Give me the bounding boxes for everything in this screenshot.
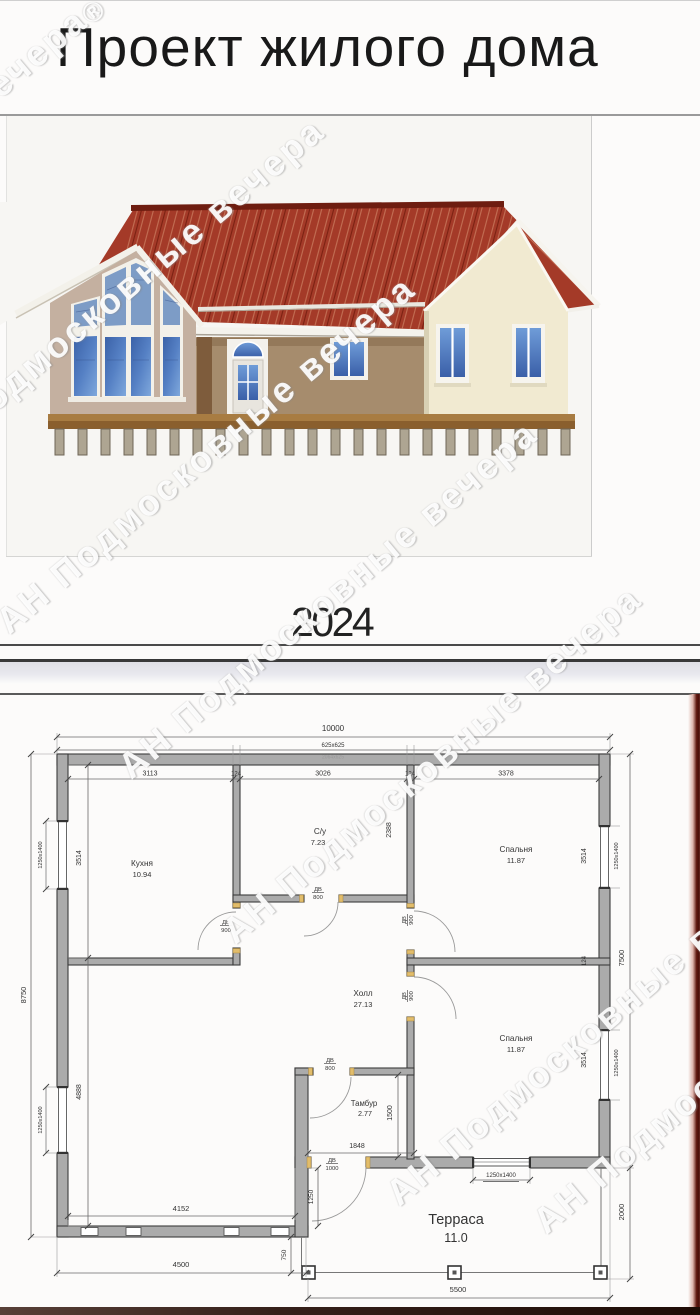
svg-text:7500: 7500 [617,950,626,967]
svg-text:4152: 4152 [173,1204,190,1213]
svg-text:3514: 3514 [581,848,588,864]
svg-text:ДВ: ДВ [402,916,408,924]
svg-text:27.13: 27.13 [354,1000,373,1009]
svg-text:1250: 1250 [308,1189,315,1204]
svg-text:3378: 3378 [498,771,514,778]
svg-text:Холл: Холл [353,989,373,998]
svg-text:Кухня: Кухня [131,859,153,868]
svg-text:ДВ: ДВ [402,992,408,1000]
svg-text:1500: 1500 [387,1105,394,1121]
svg-text:Спальня: Спальня [500,1034,533,1043]
svg-text:ДВ: ДВ [326,1058,334,1064]
svg-text:4888: 4888 [76,1084,83,1100]
svg-text:1250х1400: 1250х1400 [38,841,44,868]
svg-text:1250х1400: 1250х1400 [614,842,620,869]
svg-text:8750: 8750 [19,987,28,1004]
svg-text:10.94: 10.94 [133,870,152,879]
svg-text:4500: 4500 [173,1260,190,1269]
svg-text:11.87: 11.87 [507,1045,525,1054]
svg-text:2000: 2000 [617,1204,626,1221]
svg-text:3026: 3026 [315,771,331,778]
svg-text:3514: 3514 [76,850,83,866]
svg-text:750: 750 [281,1249,288,1260]
svg-text:900: 900 [409,991,415,1001]
svg-text:1848: 1848 [349,1143,365,1150]
svg-text:2064х625: 2064х625 [322,755,344,761]
svg-text:625х625: 625х625 [321,743,345,749]
svg-text:1250х1400: 1250х1400 [486,1173,516,1179]
svg-text:Терраса: Терраса [428,1212,485,1228]
svg-text:1000: 1000 [326,1166,339,1172]
svg-text:5500: 5500 [450,1285,467,1294]
svg-text:Спальня: Спальня [500,845,533,854]
svg-text:124: 124 [231,772,242,778]
svg-text:800: 800 [325,1066,335,1072]
svg-text:11.87: 11.87 [507,856,525,865]
svg-text:124: 124 [582,955,588,966]
svg-text:Тамбур: Тамбур [351,1099,378,1108]
svg-text:1250х1400: 1250х1400 [614,1049,620,1076]
svg-text:800: 800 [313,895,323,901]
svg-text:ДВ: ДВ [328,1158,336,1164]
svg-text:10000: 10000 [322,724,345,733]
svg-text:1250х1400: 1250х1400 [38,1106,44,1133]
svg-text:2.77: 2.77 [358,1109,372,1118]
svg-text:900: 900 [409,915,415,925]
svg-text:11.0: 11.0 [444,1231,467,1245]
